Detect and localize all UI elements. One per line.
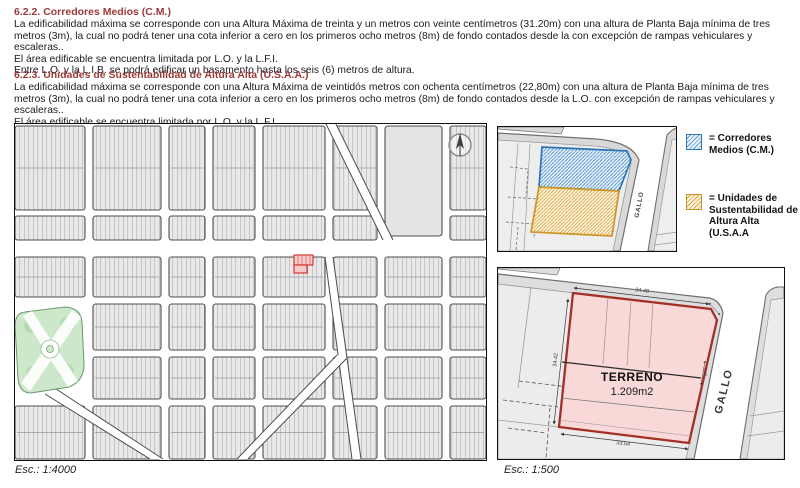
usaa-swatch-icon [686, 194, 702, 210]
paragraph: El área edificable se encuentra limitada… [14, 54, 788, 66]
legend-item-usaa: = Unidades de Sustentabilidad de Altura … [686, 194, 800, 239]
terreno-parcel [559, 293, 717, 443]
paragraph: La edificabilidad máxima se corresponde … [14, 19, 788, 54]
plaza [15, 307, 84, 393]
parcel-detail-svg: 34.48 34.42 33.54 11.11 TERRENO 1.209m2 … [498, 268, 784, 459]
legend: = Corredores Medios (C.M.) = Unidades de… [686, 134, 800, 278]
city-block [93, 216, 161, 240]
city-map-svg [15, 124, 486, 460]
legend-label: = Unidades de Sustentabilidad de Altura … [709, 193, 800, 239]
compass-icon [449, 133, 471, 156]
legend-label: = Corredores Medios (C.M.) [709, 133, 774, 156]
legend-item-corredores-medios: = Corredores Medios (C.M.) [686, 134, 800, 156]
parcel-detail-figure: 34.48 34.42 33.54 11.11 TERRENO 1.209m2 … [497, 267, 785, 460]
street-label-gallo: GALLO [713, 368, 736, 416]
section-heading: 6.2.3. Unidades de Sustentabilidad de Al… [14, 69, 788, 81]
street-label-gallo: GALLO [634, 191, 646, 219]
section-unidades-sustentabilidad: 6.2.3. Unidades de Sustentabilidad de Al… [14, 69, 788, 128]
section-heading: 6.2.2. Corredores Medios (C.M.) [14, 6, 788, 18]
block-detail-svg: GALLO [498, 127, 676, 251]
city-block [213, 216, 255, 240]
terreno-area-label: 1.209m2 [611, 386, 654, 398]
city-block [263, 216, 325, 240]
map-scale-label: Esc.: 1:4000 [15, 464, 76, 476]
corredores-medios-swatch-icon [686, 134, 702, 150]
section-corredores-medios: 6.2.2. Corredores Medios (C.M.) La edifi… [14, 6, 788, 77]
city-block [333, 216, 377, 240]
usaa-area [531, 187, 619, 236]
sidewalk [498, 268, 560, 275]
corredores-medios-area [539, 147, 631, 191]
city-block [450, 216, 486, 240]
city-block [15, 216, 85, 240]
paragraph: La edificabilidad máxima se corresponde … [14, 82, 788, 117]
sidewalk [498, 127, 564, 134]
city-block [169, 216, 205, 240]
terreno-label: TERRENO [601, 370, 663, 384]
block-detail-figure: GALLO [497, 126, 677, 252]
plain-block [385, 126, 442, 236]
detail-scale-label: Esc.: 1:500 [504, 464, 559, 476]
city-map-figure [14, 123, 487, 461]
